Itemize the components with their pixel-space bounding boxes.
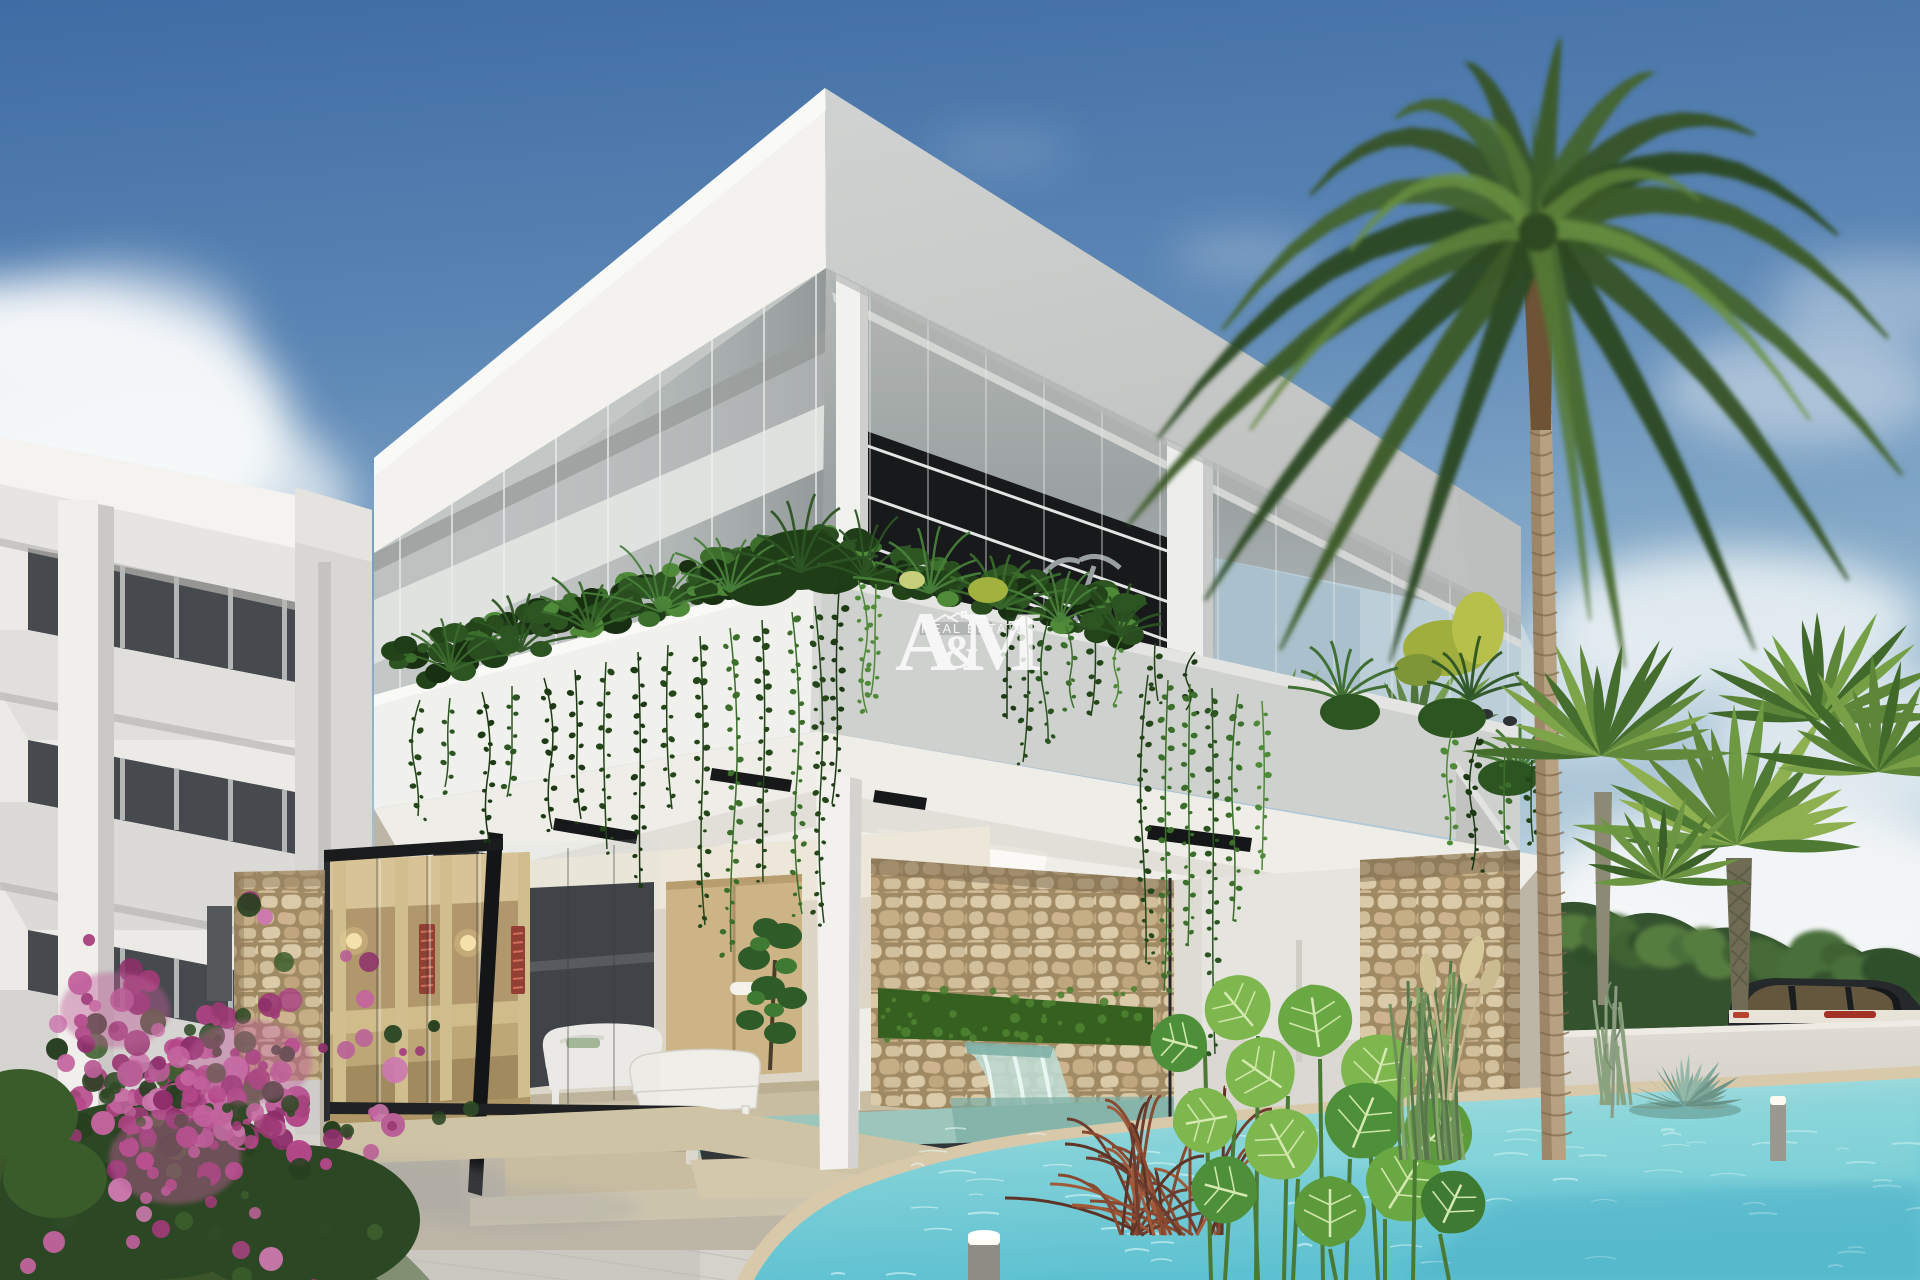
svg-text:REAL ESTATE: REAL ESTATE	[921, 622, 1027, 636]
svg-text:M: M	[962, 595, 1042, 689]
